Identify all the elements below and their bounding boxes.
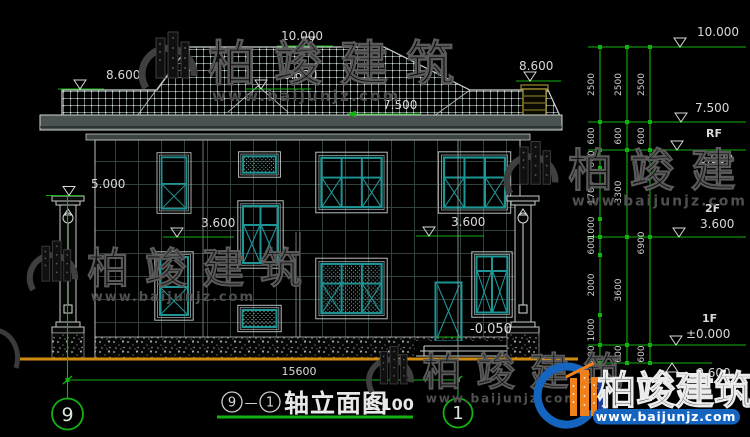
axis-number: 9 — [61, 404, 73, 426]
chain-dim: 600 — [587, 127, 597, 144]
level-text: ±0.000 — [686, 327, 730, 341]
chain-dim: 600 — [587, 237, 597, 254]
level-text: 8.600 — [519, 59, 553, 73]
level-marker-eave-left: 8.600 — [58, 68, 140, 89]
cad-elevation-screenshot: 柏竣建筑 www.baijunjz.com — [0, 0, 750, 437]
wall-top-molding — [86, 134, 530, 140]
vent-2f-center — [239, 152, 281, 177]
chain-dim: 6900 — [637, 231, 647, 254]
window-1f-middle — [316, 258, 387, 319]
chain-column-1: 2500 600 600 1700 1000 600 2000 1000 600 — [587, 73, 597, 363]
axis-bubble-9: 9 — [52, 399, 83, 430]
storey-label-1f: 1F — [702, 312, 717, 325]
chain-dim: 1000 — [587, 318, 597, 341]
title-underline — [217, 416, 413, 419]
chain-column-3: 2500 600 6900 600 — [637, 73, 647, 363]
chain-dim: 2000 — [587, 273, 597, 296]
chain-dim: 1000 — [587, 216, 597, 239]
title-scale: 1:100 — [363, 395, 414, 414]
chain-dim: 600 — [614, 127, 624, 144]
title-dash: — — [245, 396, 258, 411]
overall-dim-text: 15600 — [282, 365, 317, 378]
vent-1f-center — [238, 305, 281, 331]
chain-column-2: 2500 600 3300 3600 600 — [614, 73, 624, 363]
chain-dim: 2500 — [637, 73, 647, 96]
level-text: 5.000 — [91, 177, 125, 191]
brand-text-color: 柏竣建筑 — [597, 369, 750, 414]
drawing-title: 9 — 1 轴立面图 1:100 — [217, 389, 414, 419]
title-axis-start: 9 — [228, 396, 236, 411]
level-text: 7.500 — [695, 101, 729, 115]
level-text: 3.600 — [700, 217, 734, 231]
chimney — [521, 85, 548, 116]
level-marker-eave-right: 8.600 — [516, 59, 561, 81]
chain-dim: 600 — [637, 345, 647, 362]
level-text: 10.000 — [697, 25, 739, 39]
eave-cornice — [40, 115, 562, 140]
level-text: 8.600 — [106, 68, 140, 82]
axis-number: 1 — [452, 403, 463, 424]
chain-dim: 2500 — [587, 73, 597, 96]
watermark-corner-partial — [0, 330, 18, 368]
storey-label-rf: RF — [706, 127, 722, 140]
title-axis-end: 1 — [266, 396, 274, 411]
brand-url-text: www.baijunjz.com — [596, 409, 736, 424]
level-text: 3.600 — [201, 216, 235, 230]
elevation-drawing: 柏竣建筑 www.baijunjz.com — [0, 0, 750, 437]
chain-dim: 3600 — [614, 278, 624, 301]
door-sill-level-text: -0.050 — [470, 322, 512, 337]
chain-dim: 600 — [637, 127, 647, 144]
level-text: 3.600 — [451, 215, 485, 229]
chain-dim: 2500 — [614, 73, 624, 96]
watermark-right — [507, 141, 750, 209]
